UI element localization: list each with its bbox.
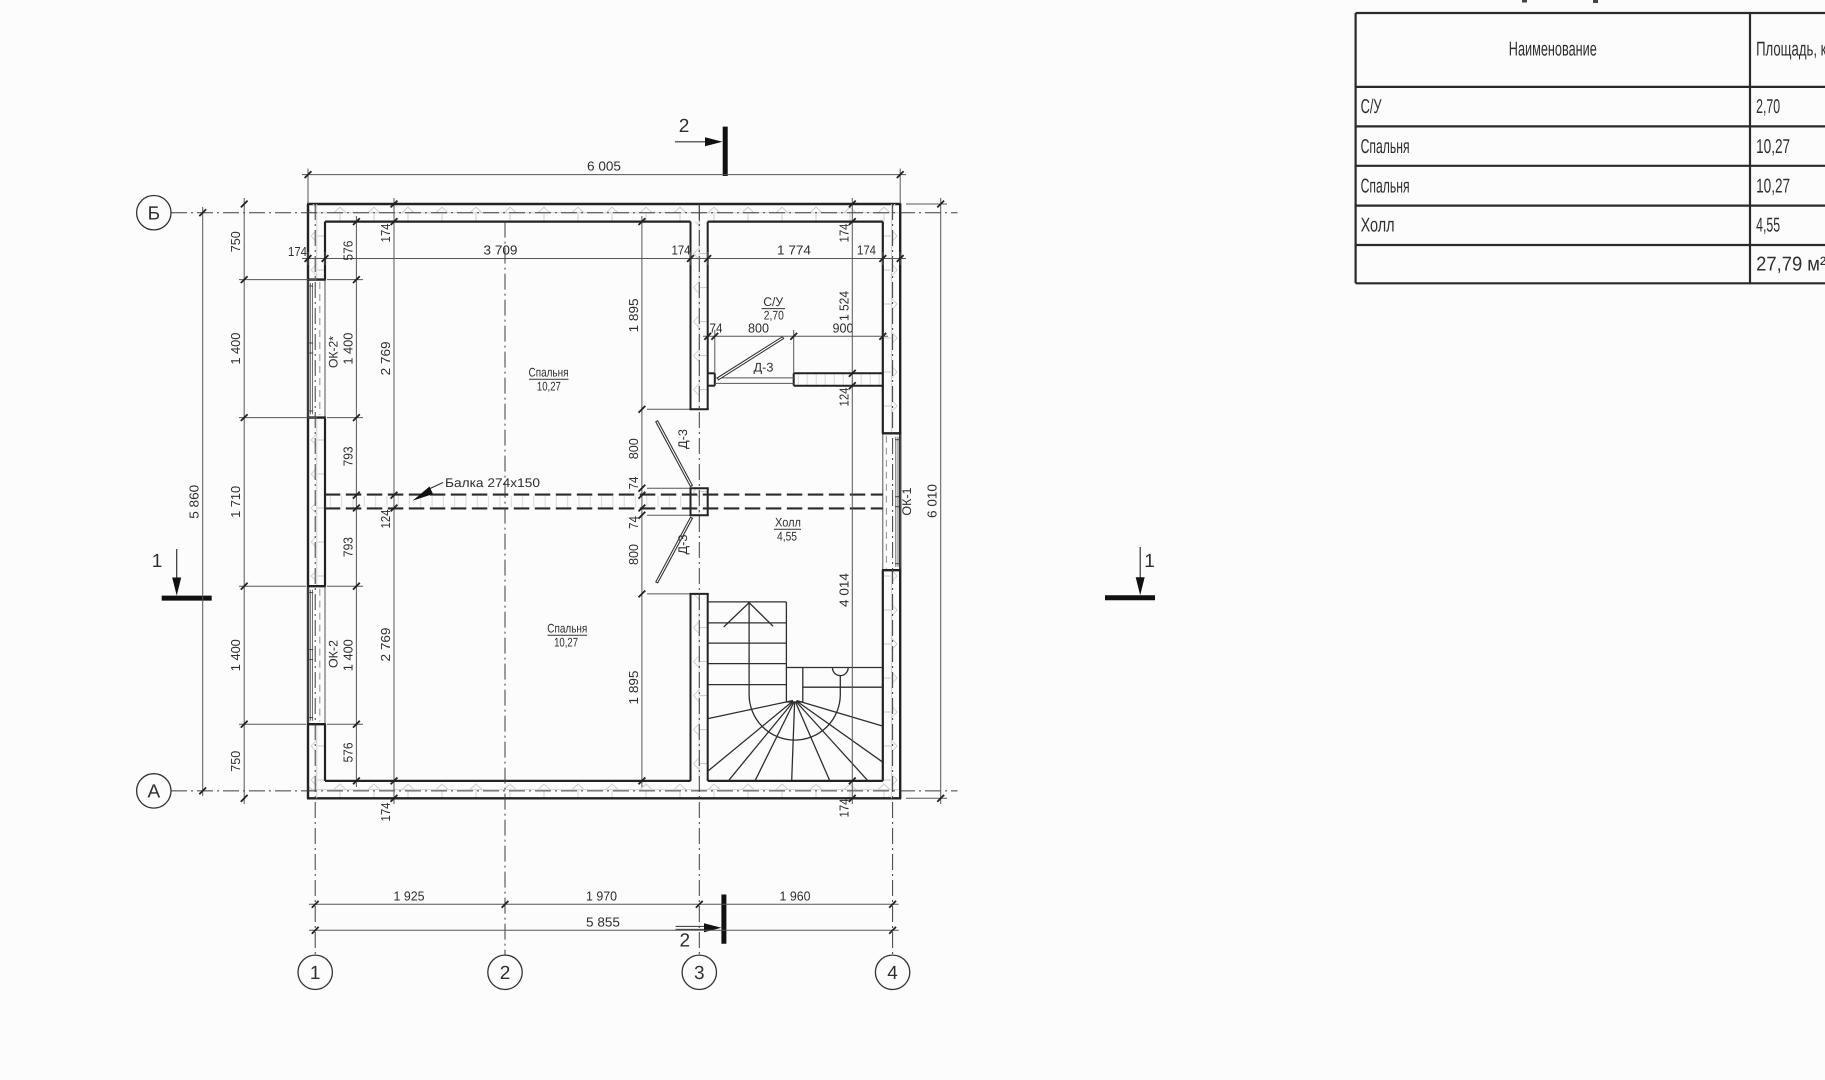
svg-text:Д-3: Д-3: [754, 361, 774, 375]
svg-text:Холл: Холл: [1361, 215, 1395, 237]
svg-text:1 895: 1 895: [626, 298, 641, 332]
svg-text:С/У: С/У: [763, 295, 783, 309]
svg-text:74: 74: [710, 321, 723, 336]
svg-text:4: 4: [887, 963, 898, 984]
svg-text:27,79 м²: 27,79 м²: [1756, 254, 1825, 276]
svg-text:1: 1: [152, 551, 163, 572]
svg-text:174: 174: [672, 243, 691, 258]
svg-text:4 014: 4 014: [836, 573, 851, 607]
svg-text:1 400: 1 400: [228, 639, 243, 671]
svg-text:800: 800: [626, 438, 641, 459]
svg-text:1 960: 1 960: [780, 888, 811, 903]
svg-text:Д-3: Д-3: [676, 429, 690, 449]
svg-text:Б: Б: [148, 203, 160, 224]
svg-text:1 400: 1 400: [340, 639, 355, 671]
svg-text:1 895: 1 895: [626, 671, 641, 705]
svg-text:ОК-2: ОК-2: [327, 640, 341, 668]
svg-text:6 005: 6 005: [587, 159, 621, 174]
svg-text:10,27: 10,27: [537, 379, 561, 393]
svg-text:174: 174: [857, 243, 876, 258]
svg-text:750: 750: [228, 751, 243, 772]
svg-text:1: 1: [1144, 551, 1155, 572]
svg-text:1 400: 1 400: [228, 333, 243, 365]
svg-text:174: 174: [378, 803, 393, 822]
svg-text:3 709: 3 709: [484, 243, 518, 258]
svg-text:А: А: [147, 782, 160, 803]
svg-text:10,27: 10,27: [1756, 175, 1790, 197]
svg-text:10,27: 10,27: [1756, 136, 1790, 158]
svg-text:Наименование: Наименование: [1509, 39, 1597, 61]
svg-text:Спальня: Спальня: [529, 366, 569, 380]
svg-text:Спальня: Спальня: [1361, 175, 1410, 197]
svg-text:Площадь, кв.м: Площадь, кв.м: [1756, 39, 1825, 61]
svg-text:4,55: 4,55: [777, 529, 797, 543]
svg-text:10,27: 10,27: [554, 635, 578, 649]
svg-text:1 400: 1 400: [340, 333, 355, 365]
svg-text:1 925: 1 925: [394, 888, 425, 903]
svg-text:Спальня: Спальня: [1361, 136, 1410, 158]
svg-text:793: 793: [340, 446, 355, 466]
svg-text:174: 174: [288, 244, 307, 259]
svg-text:2 769: 2 769: [378, 341, 393, 375]
svg-text:800: 800: [626, 544, 641, 565]
svg-text:4,55: 4,55: [1756, 215, 1780, 237]
svg-text:576: 576: [340, 743, 355, 763]
svg-text:174: 174: [836, 224, 851, 243]
svg-text:Д-3: Д-3: [676, 534, 690, 554]
svg-text:ОК-2*: ОК-2*: [327, 336, 341, 368]
svg-text:ОК-1: ОК-1: [900, 488, 914, 516]
svg-text:900: 900: [833, 321, 854, 336]
svg-text:Балка 274х150: Балка 274х150: [445, 476, 540, 490]
svg-text:6 010: 6 010: [925, 484, 940, 518]
svg-text:С/У: С/У: [1361, 96, 1382, 118]
svg-text:1 774: 1 774: [777, 243, 811, 258]
svg-text:124: 124: [378, 510, 393, 529]
svg-text:174: 174: [378, 224, 393, 243]
svg-text:124: 124: [836, 388, 851, 407]
svg-text:2 769: 2 769: [378, 628, 393, 662]
svg-text:174: 174: [836, 799, 851, 818]
svg-text:1: 1: [310, 963, 321, 984]
svg-text:74: 74: [626, 516, 641, 529]
svg-text:1 970: 1 970: [586, 888, 617, 903]
svg-text:793: 793: [340, 537, 355, 557]
svg-text:2: 2: [679, 116, 690, 137]
svg-text:1 710: 1 710: [228, 486, 243, 518]
svg-text:Холл: Холл: [775, 516, 801, 530]
svg-text:Спальня: Спальня: [547, 622, 587, 636]
svg-text:5 855: 5 855: [586, 914, 620, 929]
svg-text:3: 3: [694, 963, 705, 984]
svg-text:2: 2: [500, 963, 511, 984]
svg-text:1 524: 1 524: [836, 291, 851, 321]
svg-text:2,70: 2,70: [1756, 96, 1780, 118]
svg-text:750: 750: [228, 231, 243, 252]
svg-text:576: 576: [340, 241, 355, 261]
svg-text:74: 74: [626, 477, 641, 490]
svg-text:2,70: 2,70: [764, 309, 784, 323]
svg-text:5 860: 5 860: [187, 485, 202, 519]
svg-text:2: 2: [680, 931, 691, 952]
svg-text:800: 800: [748, 321, 769, 336]
